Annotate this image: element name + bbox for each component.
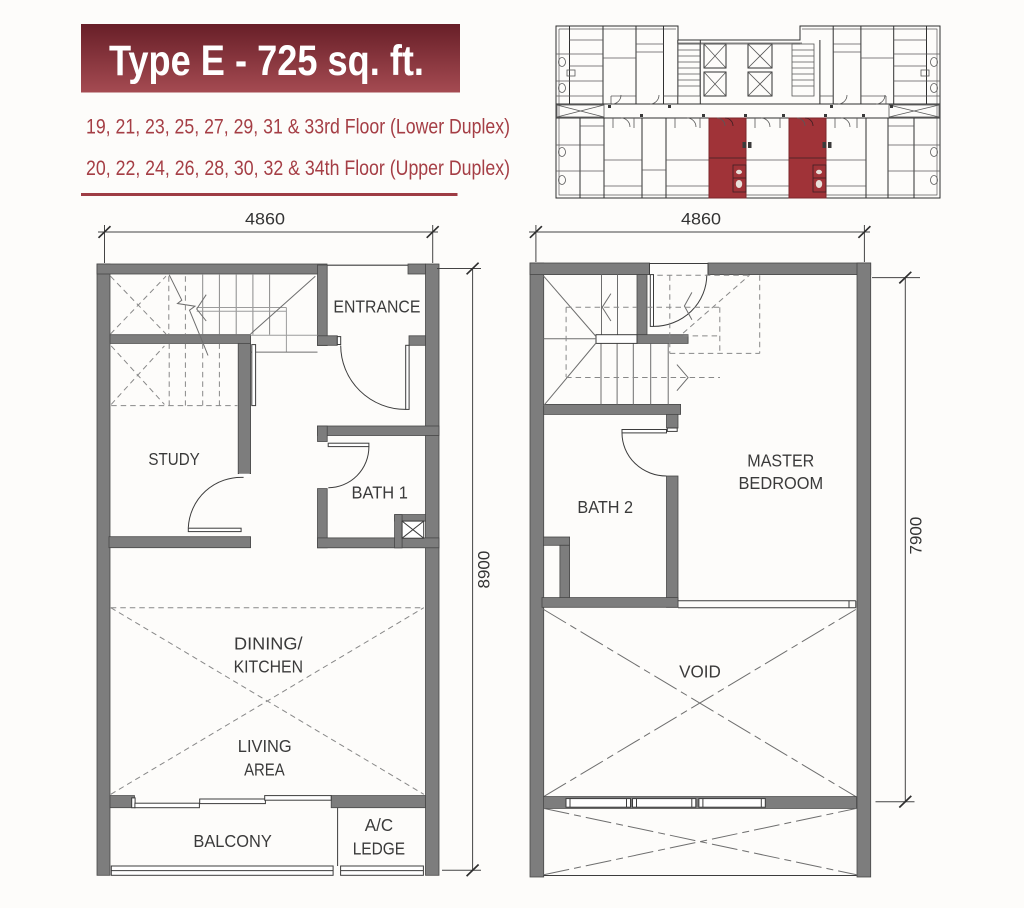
svg-text:A/C: A/C bbox=[365, 815, 393, 835]
svg-text:4860: 4860 bbox=[681, 210, 721, 229]
svg-text:7900: 7900 bbox=[906, 517, 925, 555]
svg-text:AREA: AREA bbox=[244, 759, 285, 779]
svg-text:Type E - 725 sq. ft.: Type E - 725 sq. ft. bbox=[109, 37, 424, 85]
svg-text:ENTRANCE: ENTRANCE bbox=[333, 297, 420, 317]
svg-text:20, 22, 24, 26, 28, 30, 32 & 3: 20, 22, 24, 26, 28, 30, 32 & 34th Floor … bbox=[86, 157, 510, 180]
svg-text:DINING/: DINING/ bbox=[234, 634, 303, 654]
svg-text:8900: 8900 bbox=[474, 551, 493, 589]
svg-text:BATH 1: BATH 1 bbox=[352, 482, 408, 502]
svg-text:BALCONY: BALCONY bbox=[193, 831, 272, 851]
svg-text:LIVING: LIVING bbox=[238, 736, 292, 756]
svg-text:BATH 2: BATH 2 bbox=[577, 497, 633, 517]
svg-text:STUDY: STUDY bbox=[148, 449, 200, 469]
svg-text:19, 21, 23, 25, 27, 29, 31 & 3: 19, 21, 23, 25, 27, 29, 31 & 33rd Floor … bbox=[86, 116, 510, 139]
svg-text:BEDROOM: BEDROOM bbox=[739, 473, 824, 493]
svg-text:4860: 4860 bbox=[245, 210, 285, 229]
svg-text:MASTER: MASTER bbox=[747, 451, 814, 471]
svg-text:LEDGE: LEDGE bbox=[353, 839, 405, 859]
svg-text:VOID: VOID bbox=[679, 662, 721, 682]
svg-text:KITCHEN: KITCHEN bbox=[234, 657, 303, 677]
